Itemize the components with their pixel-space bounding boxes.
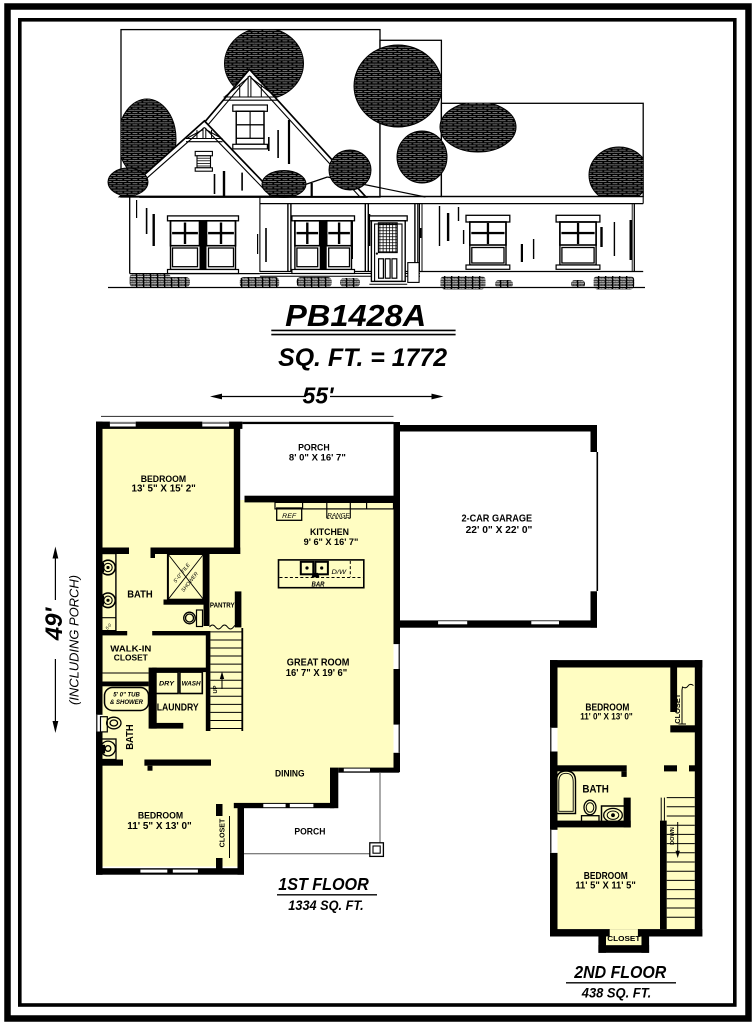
svg-text:BATH: BATH [124, 724, 136, 750]
svg-text:BATH: BATH [127, 589, 153, 601]
svg-text:11' 5" X 13' 0": 11' 5" X 13' 0" [127, 821, 192, 832]
svg-text:16' 7" X 19' 6": 16' 7" X 19' 6" [286, 668, 348, 679]
svg-text:& SHOWER: & SHOWER [110, 700, 144, 706]
svg-text:GREAT ROOM: GREAT ROOM [287, 657, 350, 668]
svg-text:PORCH: PORCH [294, 826, 325, 837]
svg-text:WASH: WASH [182, 681, 202, 688]
svg-text:11' 0" X 13' 0": 11' 0" X 13' 0" [580, 712, 633, 722]
svg-text:BEDROOM: BEDROOM [141, 474, 187, 484]
svg-text:55': 55' [302, 383, 335, 409]
svg-text:BEDROOM: BEDROOM [138, 811, 184, 821]
svg-text:DRY: DRY [159, 681, 175, 688]
svg-text:REF: REF [282, 513, 297, 520]
svg-text:1ST FLOOR: 1ST FLOOR [278, 874, 369, 894]
svg-text:22' 0" X 22' 0": 22' 0" X 22' 0" [466, 525, 533, 536]
svg-text:CLOSET: CLOSET [675, 693, 682, 724]
svg-text:DINING: DINING [275, 769, 305, 779]
svg-text:WALK-IN: WALK-IN [110, 645, 151, 654]
svg-text:BAR: BAR [312, 579, 326, 588]
svg-text:(INCLUDING PORCH): (INCLUDING PORCH) [67, 575, 82, 705]
svg-text:PB1428A: PB1428A [285, 298, 426, 333]
svg-text:CLOSET: CLOSET [607, 934, 641, 943]
svg-text:8' 0" X 16' 7": 8' 0" X 16' 7" [289, 453, 346, 463]
svg-text:5' 0" TUB: 5' 0" TUB [113, 693, 140, 699]
svg-text:SQ. FT. = 1772: SQ. FT. = 1772 [278, 344, 447, 372]
svg-text:BATH: BATH [582, 783, 609, 795]
svg-text:438 SQ. FT.: 438 SQ. FT. [581, 986, 651, 1001]
svg-text:2ND FLOOR: 2ND FLOOR [573, 962, 666, 982]
svg-text:LAUNDRY: LAUNDRY [157, 703, 199, 714]
svg-text:49': 49' [41, 607, 68, 642]
svg-text:PANTRY: PANTRY [210, 601, 235, 610]
svg-text:1334 SQ. FT.: 1334 SQ. FT. [288, 898, 363, 913]
svg-text:9' 6" X 16' 7": 9' 6" X 16' 7" [304, 537, 359, 547]
svg-text:CLOSET: CLOSET [220, 818, 227, 847]
svg-text:D/W: D/W [332, 569, 347, 576]
svg-text:RANGE: RANGE [327, 512, 350, 519]
svg-text:CLOSET: CLOSET [114, 654, 148, 663]
svg-text:2-CAR GARAGE: 2-CAR GARAGE [461, 514, 532, 525]
svg-text:DOWN: DOWN [670, 827, 676, 845]
svg-text:13' 5" X 15' 2": 13' 5" X 15' 2" [132, 484, 197, 495]
svg-text:UP: UP [213, 685, 219, 693]
svg-text:11' 5" X 11' 5": 11' 5" X 11' 5" [575, 880, 636, 891]
